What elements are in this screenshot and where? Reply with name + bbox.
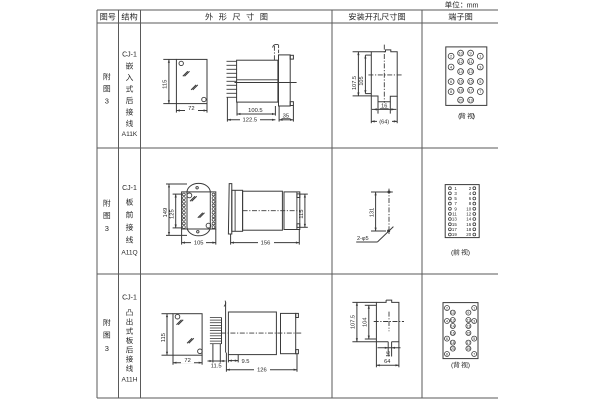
svg-text:105: 105 <box>194 240 204 246</box>
svg-text:3: 3 <box>479 65 481 69</box>
svg-text:16: 16 <box>451 331 455 335</box>
svg-text:149: 149 <box>163 208 169 218</box>
svg-text:): ) <box>468 249 470 256</box>
svg-text:115: 115 <box>299 209 305 218</box>
svg-text:): ) <box>473 113 475 120</box>
svg-text:A11K: A11K <box>122 131 138 138</box>
svg-text:18: 18 <box>451 341 455 345</box>
svg-text:9: 9 <box>470 51 472 55</box>
svg-text:14: 14 <box>458 70 462 74</box>
svg-text:3: 3 <box>105 224 109 233</box>
svg-text:72: 72 <box>184 358 190 364</box>
svg-text:126: 126 <box>257 368 267 374</box>
svg-text:19: 19 <box>466 347 470 351</box>
svg-text:5: 5 <box>473 337 475 341</box>
svg-text:): ) <box>468 362 470 369</box>
svg-text:20: 20 <box>466 232 471 237</box>
svg-text:A11H: A11H <box>121 376 137 383</box>
svg-text:20: 20 <box>458 98 462 102</box>
svg-text:100.5: 100.5 <box>248 108 263 114</box>
svg-text:11: 11 <box>469 60 473 64</box>
svg-text:105: 105 <box>359 76 365 85</box>
svg-text:CJ-1: CJ-1 <box>122 51 137 58</box>
svg-text:10: 10 <box>451 311 455 315</box>
svg-text:125: 125 <box>170 209 176 219</box>
svg-text:11: 11 <box>467 318 471 322</box>
svg-text:8: 8 <box>450 90 452 94</box>
svg-text:12: 12 <box>451 318 455 322</box>
svg-text:115: 115 <box>161 333 167 342</box>
svg-text:CJ-1: CJ-1 <box>122 295 137 302</box>
svg-text:15: 15 <box>466 331 470 335</box>
svg-text:3: 3 <box>105 96 109 105</box>
svg-text:9.5: 9.5 <box>241 359 249 365</box>
svg-text:A11Q: A11Q <box>121 250 137 257</box>
svg-text:20: 20 <box>451 347 455 351</box>
svg-text:156: 156 <box>261 240 271 246</box>
svg-text:7: 7 <box>473 352 475 356</box>
svg-text:1: 1 <box>473 306 475 310</box>
svg-text:12: 12 <box>458 60 462 64</box>
svg-text:1: 1 <box>479 55 481 59</box>
svg-text:15: 15 <box>468 80 472 84</box>
svg-text:7: 7 <box>479 90 481 94</box>
svg-text:(64): (64) <box>379 119 389 125</box>
svg-text:6: 6 <box>450 80 452 84</box>
svg-text:9: 9 <box>467 311 469 315</box>
svg-text:18: 18 <box>458 89 462 93</box>
svg-text:mm: mm <box>467 2 479 9</box>
svg-text:14: 14 <box>451 324 455 328</box>
svg-text:6: 6 <box>446 337 448 341</box>
svg-text:13: 13 <box>468 70 472 74</box>
svg-text:8: 8 <box>446 352 448 356</box>
svg-text:16: 16 <box>386 351 392 357</box>
svg-text:5: 5 <box>479 80 481 84</box>
svg-text:107.5: 107.5 <box>352 76 358 90</box>
svg-text:CJ-1: CJ-1 <box>122 185 137 192</box>
svg-text:104: 104 <box>362 318 368 327</box>
svg-text:10: 10 <box>458 51 462 55</box>
svg-text:72: 72 <box>188 106 194 112</box>
svg-text:122.5: 122.5 <box>243 118 258 124</box>
svg-text:11.5: 11.5 <box>211 363 222 369</box>
svg-text:2: 2 <box>446 306 448 310</box>
svg-text:2-φ5: 2-φ5 <box>357 236 369 242</box>
svg-text:64: 64 <box>384 359 390 365</box>
svg-text:3: 3 <box>473 319 475 323</box>
svg-text:13: 13 <box>466 324 470 328</box>
svg-text:19: 19 <box>468 98 472 102</box>
svg-text:19: 19 <box>452 232 457 237</box>
svg-text:4: 4 <box>450 65 452 69</box>
svg-text:17: 17 <box>466 341 470 345</box>
svg-text:131: 131 <box>370 208 376 217</box>
svg-text:115: 115 <box>163 80 169 89</box>
svg-text:107.5: 107.5 <box>351 315 357 329</box>
svg-text:3: 3 <box>105 344 109 353</box>
svg-text:16: 16 <box>458 80 462 84</box>
svg-text:17: 17 <box>468 89 472 93</box>
svg-text:2: 2 <box>450 55 452 59</box>
svg-text:4: 4 <box>446 319 448 323</box>
